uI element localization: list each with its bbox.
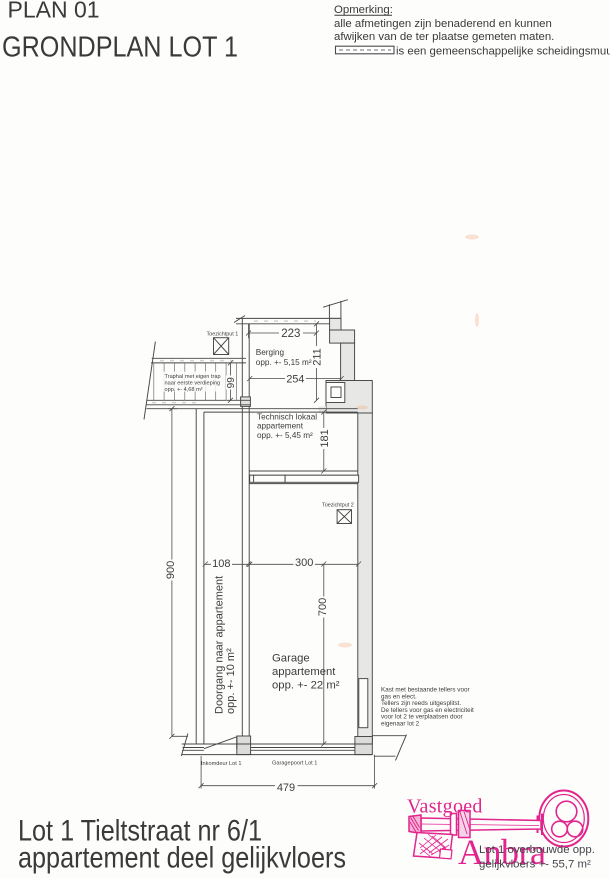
svg-text:is een gemeenschappelijke sche: is een gemeenschappelijke scheidingsmuu bbox=[396, 46, 610, 58]
svg-text:181: 181 bbox=[319, 429, 331, 447]
svg-text:Doorgang naar appartement: Doorgang naar appartement bbox=[214, 576, 226, 714]
svg-text:PLAN 01: PLAN 01 bbox=[8, 0, 100, 23]
svg-text:479: 479 bbox=[277, 782, 295, 794]
svg-text:afwijken van de ter plaatse ge: afwijken van de ter plaatse gemeten mate… bbox=[334, 31, 554, 43]
svg-text:Opmerking:: Opmerking: bbox=[334, 4, 393, 16]
svg-text:700: 700 bbox=[317, 598, 329, 616]
svg-text:300: 300 bbox=[295, 557, 313, 569]
svg-text:Garagepoort Lot 1: Garagepoort Lot 1 bbox=[272, 761, 317, 767]
svg-text:appartement deel gelijkvloers: appartement deel gelijkvloers bbox=[18, 842, 346, 875]
svg-text:Inkomdeur Lot 1: Inkomdeur Lot 1 bbox=[201, 761, 241, 767]
svg-text:alle afmetingen zijn benaderen: alle afmetingen zijn benaderend en kunne… bbox=[334, 18, 552, 30]
svg-text:211: 211 bbox=[312, 348, 324, 366]
svg-text:Vastgoed: Vastgoed bbox=[407, 796, 483, 818]
svg-text:Traphal met eigen trap: Traphal met eigen trap bbox=[165, 374, 221, 380]
svg-text:Berging: Berging bbox=[256, 348, 285, 357]
svg-text:gelijkvloers +- 55,7 m²: gelijkvloers +- 55,7 m² bbox=[479, 859, 591, 871]
svg-text:99: 99 bbox=[226, 377, 237, 389]
svg-text:108: 108 bbox=[212, 558, 230, 570]
svg-text:900: 900 bbox=[165, 561, 177, 579]
svg-text:GRONDPLAN LOT 1: GRONDPLAN LOT 1 bbox=[2, 32, 238, 64]
svg-text:opp. +- 5,15 m²: opp. +- 5,15 m² bbox=[256, 358, 312, 367]
svg-text:254: 254 bbox=[286, 373, 304, 385]
svg-text:opp. +- 22 m²: opp. +- 22 m² bbox=[272, 680, 340, 692]
svg-text:Toezichtput 1: Toezichtput 1 bbox=[207, 332, 239, 338]
svg-text:appartement: appartement bbox=[272, 666, 336, 678]
svg-text:opp. +- 4,68 m²: opp. +- 4,68 m² bbox=[165, 387, 203, 393]
svg-text:opp. +- 5,45 m²: opp. +- 5,45 m² bbox=[257, 431, 313, 440]
svg-text:Garage: Garage bbox=[272, 653, 310, 665]
svg-text:appartement: appartement bbox=[257, 422, 304, 431]
svg-text:Lot 1 overbouwde opp.: Lot 1 overbouwde opp. bbox=[479, 844, 595, 856]
svg-text:eigenaar lot 2: eigenaar lot 2 bbox=[381, 721, 420, 728]
svg-text:opp. +- 10 m²: opp. +- 10 m² bbox=[225, 648, 237, 714]
svg-text:Technisch lokaal: Technisch lokaal bbox=[257, 413, 317, 422]
svg-text:223: 223 bbox=[281, 328, 300, 340]
svg-text:naar eerste verdieping: naar eerste verdieping bbox=[165, 380, 221, 386]
svg-text:Toezichtput 2: Toezichtput 2 bbox=[322, 503, 354, 509]
